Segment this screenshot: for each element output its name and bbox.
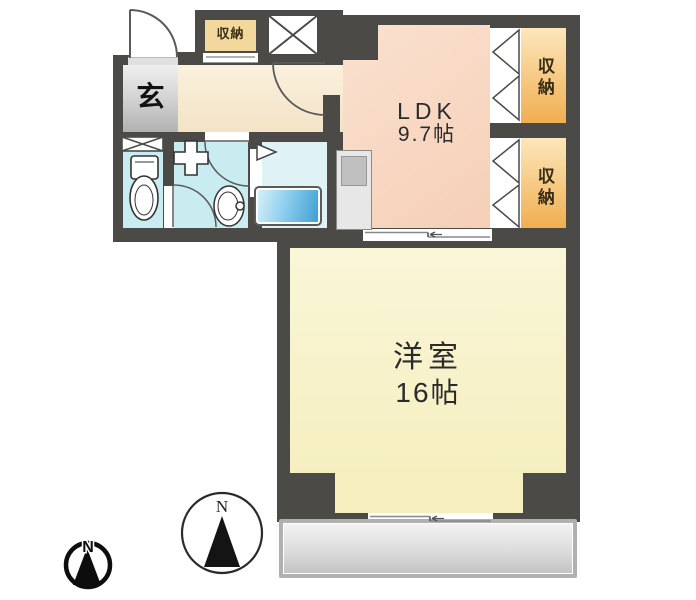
storage-top-slide-strip [203, 53, 258, 63]
storage-upper-label: 収納 [535, 48, 553, 108]
balcony [279, 519, 577, 578]
balcony-deck [283, 523, 573, 574]
western-room-floor-recess [335, 473, 523, 513]
kitchen-counter-sink [341, 156, 367, 186]
storage-top-label: 収納 [203, 27, 258, 41]
wall-left-outer [113, 55, 123, 242]
hallway-floor [178, 65, 343, 132]
folding-door-band-lower [494, 138, 521, 228]
wall-pillar-left [285, 473, 335, 519]
toilet-floor [123, 142, 163, 228]
wall-right-outer [566, 15, 580, 522]
shaft-x-box [266, 13, 320, 57]
storage-lower-label: 収納 [535, 158, 553, 218]
compass-n-label: N [216, 497, 228, 516]
small-north-arrow [73, 548, 101, 585]
small-north-compass-icon: N [66, 539, 110, 587]
entrance-door-arc [130, 10, 177, 58]
wall-pillar-right [523, 473, 566, 519]
entrance-label: 玄 [123, 82, 178, 111]
small-compass-n-label: N [82, 539, 94, 556]
washroom-floor [174, 142, 248, 228]
floorplan-canvas: N N 玄 収納 LDK 9.7帖 洋室 16帖 収納 収納 [0, 0, 696, 600]
wall-ldk-topleft-chunk [343, 15, 378, 60]
toilet-door-opening [164, 186, 174, 228]
north-compass-icon: N [182, 493, 262, 573]
western-size-label: 16帖 [345, 378, 511, 407]
north-arrow [204, 516, 240, 567]
ldk-western-sliding-door [363, 229, 492, 241]
ldk-name-label: LDK [347, 99, 507, 123]
ldk-size-label: 9.7帖 [347, 124, 507, 146]
entrance-threshold [128, 57, 178, 65]
washroom-door-opening [205, 132, 249, 142]
western-name-label: 洋室 [345, 342, 511, 374]
bathtub [256, 188, 320, 224]
